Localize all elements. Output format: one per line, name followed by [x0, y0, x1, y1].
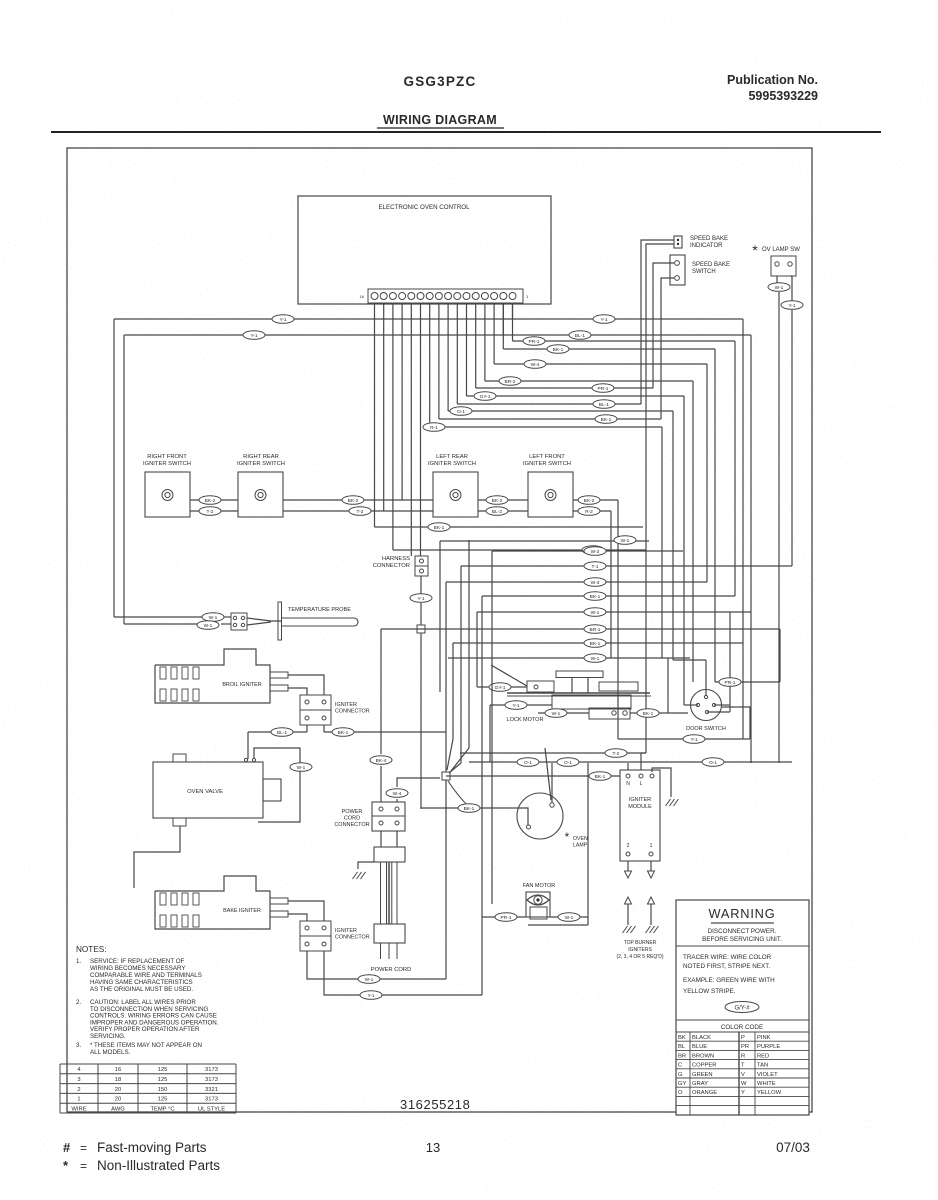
- svg-text:G/Y-#: G/Y-#: [734, 1006, 750, 1012]
- svg-text:Fast-moving Parts: Fast-moving Parts: [97, 1140, 207, 1155]
- svg-text:R: R: [741, 1053, 745, 1059]
- svg-text:BROWN: BROWN: [692, 1053, 714, 1059]
- svg-text:R-1: R-1: [430, 425, 438, 431]
- svg-text:BR-2: BR-2: [505, 379, 516, 385]
- svg-text:SERVICE: IF REPLACEMENT OF: SERVICE: IF REPLACEMENT OF: [90, 958, 185, 965]
- svg-text:GY-1: GY-1: [495, 685, 506, 691]
- svg-text:20: 20: [115, 1087, 121, 1093]
- svg-text:W-1: W-1: [209, 615, 218, 621]
- svg-text:V: V: [741, 1072, 745, 1078]
- svg-text:WIRING BECOMES NECESSARY: WIRING BECOMES NECESSARY: [90, 965, 185, 972]
- svg-text:P: P: [741, 1035, 745, 1041]
- svg-text:IGNITER SWITCH: IGNITER SWITCH: [143, 461, 191, 467]
- svg-text:W-1: W-1: [775, 285, 784, 291]
- svg-text:VIOLET: VIOLET: [757, 1072, 778, 1078]
- svg-text:Y-1: Y-1: [600, 317, 607, 323]
- svg-text:PR-1: PR-1: [529, 339, 540, 345]
- svg-text:Y-1: Y-1: [512, 703, 519, 709]
- svg-text:SPEED BAKE: SPEED BAKE: [692, 262, 730, 268]
- svg-text:CONNECTOR: CONNECTOR: [334, 822, 369, 828]
- svg-text:G: G: [678, 1072, 683, 1078]
- svg-text:ELECTRONIC OVEN CONTROL: ELECTRONIC OVEN CONTROL: [378, 204, 470, 211]
- svg-text:BK-1: BK-1: [590, 641, 601, 647]
- svg-text:PINK: PINK: [757, 1035, 771, 1041]
- svg-text:BR: BR: [678, 1053, 686, 1059]
- svg-text:Y-1: Y-1: [279, 317, 286, 323]
- svg-text:3: 3: [77, 1077, 80, 1083]
- svg-text:*: *: [565, 830, 570, 844]
- svg-text:Y-1: Y-1: [250, 333, 257, 339]
- svg-text:TOP BURNER: TOP BURNER: [624, 940, 657, 946]
- svg-text:BLUE: BLUE: [692, 1044, 707, 1050]
- svg-text:O-1: O-1: [709, 760, 717, 766]
- svg-text:3321: 3321: [205, 1087, 218, 1093]
- svg-text:T: T: [741, 1063, 745, 1069]
- svg-text:3173: 3173: [205, 1097, 218, 1103]
- svg-text:IGNITER SWITCH: IGNITER SWITCH: [523, 461, 571, 467]
- svg-text:Non-Illustrated Parts: Non-Illustrated Parts: [97, 1158, 220, 1173]
- svg-text:1.: 1.: [76, 958, 81, 965]
- svg-text:*: *: [752, 242, 758, 258]
- svg-text:W-4: W-4: [531, 362, 540, 368]
- svg-text:O-1: O-1: [524, 760, 532, 766]
- svg-text:BK-2: BK-2: [348, 498, 359, 504]
- svg-text:2: 2: [627, 843, 630, 849]
- svg-text:TAN: TAN: [757, 1063, 768, 1069]
- svg-text:316255218: 316255218: [400, 1097, 470, 1112]
- svg-text:W-2: W-2: [591, 549, 600, 555]
- svg-text:BROIL IGNITER: BROIL IGNITER: [222, 682, 261, 688]
- svg-text:FAN MOTOR: FAN MOTOR: [523, 883, 556, 889]
- svg-text:T-1: T-1: [592, 564, 599, 570]
- svg-text:PR-1: PR-1: [725, 680, 736, 686]
- svg-text:AS THE ORIGINAL MUST BE USED.: AS THE ORIGINAL MUST BE USED.: [90, 986, 193, 993]
- svg-text:YELLOW STRIPE.: YELLOW STRIPE.: [683, 988, 736, 995]
- svg-text:PR: PR: [741, 1044, 749, 1050]
- svg-text:BL-1: BL-1: [599, 402, 609, 408]
- svg-text:CONNECTOR: CONNECTOR: [335, 935, 370, 941]
- svg-text:IGNITERS: IGNITERS: [628, 947, 652, 953]
- svg-text:BK-1: BK-1: [553, 347, 564, 353]
- svg-text:16: 16: [360, 294, 365, 299]
- svg-text:3.: 3.: [76, 1042, 81, 1049]
- svg-text:TEMPERATURE PROBE: TEMPERATURE PROBE: [288, 607, 351, 613]
- svg-text:BK-2: BK-2: [584, 498, 595, 504]
- svg-text:3173: 3173: [205, 1077, 218, 1083]
- svg-text:RIGHT FRONT: RIGHT FRONT: [147, 454, 187, 460]
- svg-text:COPPER: COPPER: [692, 1063, 716, 1069]
- svg-text:W-3: W-3: [591, 580, 600, 586]
- svg-text:LEFT FRONT: LEFT FRONT: [529, 454, 565, 460]
- svg-text:BK-1: BK-1: [338, 730, 349, 736]
- svg-text:SERVICING.: SERVICING.: [90, 1033, 126, 1040]
- svg-text:BEFORE SERVICING UNIT.: BEFORE SERVICING UNIT.: [702, 936, 782, 943]
- svg-text:2.: 2.: [76, 999, 81, 1006]
- svg-text:16: 16: [115, 1067, 121, 1073]
- svg-text:SWITCH: SWITCH: [692, 269, 716, 275]
- svg-text:Y-1: Y-1: [690, 737, 697, 743]
- svg-text:GY: GY: [678, 1081, 687, 1087]
- svg-text:BAKE IGNITER: BAKE IGNITER: [223, 908, 261, 914]
- svg-text:WARNING: WARNING: [709, 906, 776, 921]
- svg-text:AWG: AWG: [111, 1106, 125, 1112]
- svg-text:W-1: W-1: [591, 656, 600, 662]
- svg-text:R-2: R-2: [585, 509, 593, 515]
- svg-text:O: O: [678, 1090, 683, 1096]
- svg-text:150: 150: [158, 1087, 168, 1093]
- svg-text:HARNESS: HARNESS: [382, 556, 410, 562]
- svg-text:ORANGE: ORANGE: [692, 1090, 717, 1096]
- svg-text:OV LAMP SW: OV LAMP SW: [762, 247, 800, 253]
- svg-text:C: C: [678, 1063, 682, 1069]
- svg-text:125: 125: [158, 1067, 168, 1073]
- svg-text:BK-1: BK-1: [434, 525, 445, 531]
- svg-text:BK-2: BK-2: [492, 498, 503, 504]
- svg-text:COMPARABLE WIRE AND TERMINALS: COMPARABLE WIRE AND TERMINALS: [90, 972, 202, 979]
- svg-text:CORD: CORD: [344, 816, 360, 822]
- svg-text:BK-1: BK-1: [601, 417, 612, 423]
- svg-text:Y-1: Y-1: [788, 303, 795, 309]
- svg-text:W-1: W-1: [365, 977, 374, 983]
- svg-text:T-2: T-2: [613, 751, 620, 757]
- svg-text:BL-2: BL-2: [492, 509, 502, 515]
- svg-text:BR-1: BR-1: [590, 627, 601, 633]
- svg-text:ALL MODELS.: ALL MODELS.: [90, 1049, 131, 1056]
- svg-text:2: 2: [77, 1087, 80, 1093]
- svg-text:BL-1: BL-1: [277, 730, 287, 736]
- svg-text:5995393229: 5995393229: [748, 89, 818, 103]
- svg-text:BK-1: BK-1: [464, 806, 475, 812]
- svg-text:PURPLE: PURPLE: [757, 1044, 780, 1050]
- svg-text:=: =: [80, 1159, 87, 1173]
- svg-text:LAMP: LAMP: [573, 843, 588, 849]
- svg-text:GRAY: GRAY: [692, 1081, 708, 1087]
- svg-text:IGNITER: IGNITER: [335, 928, 357, 934]
- svg-text:NOTED FIRST, STRIPE NEXT.: NOTED FIRST, STRIPE NEXT.: [683, 963, 770, 970]
- svg-text:MODULE: MODULE: [628, 804, 652, 810]
- svg-text:RIGHT REAR: RIGHT REAR: [243, 454, 279, 460]
- svg-text:125: 125: [158, 1077, 168, 1083]
- svg-text:POWER CORD: POWER CORD: [371, 967, 412, 973]
- svg-text:NOTES:: NOTES:: [76, 945, 106, 954]
- svg-text:BK-2: BK-2: [205, 498, 216, 504]
- svg-text:GY-1: GY-1: [480, 394, 491, 400]
- svg-text:BK-1: BK-1: [590, 594, 601, 600]
- svg-text:W-1: W-1: [591, 610, 600, 616]
- svg-text:Y-1: Y-1: [417, 596, 424, 602]
- svg-text:CONNECTOR: CONNECTOR: [335, 709, 370, 715]
- svg-text:BK-1: BK-1: [643, 711, 654, 717]
- svg-text:DOOR SWITCH: DOOR SWITCH: [686, 726, 726, 732]
- svg-text:07/03: 07/03: [776, 1140, 810, 1155]
- svg-text:Publication No.: Publication No.: [727, 73, 818, 87]
- svg-text:GSG3PZC: GSG3PZC: [404, 74, 477, 89]
- svg-text:OVEN: OVEN: [573, 836, 588, 842]
- svg-text:BLACK: BLACK: [692, 1035, 711, 1041]
- svg-text:GREEN: GREEN: [692, 1072, 713, 1078]
- svg-text:HAVING SAME CHARACTERISTICS: HAVING SAME CHARACTERISTICS: [90, 979, 193, 986]
- svg-text:1: 1: [77, 1097, 80, 1103]
- svg-text:WIRE: WIRE: [71, 1106, 86, 1112]
- svg-text:WIRING DIAGRAM: WIRING DIAGRAM: [383, 113, 497, 127]
- svg-text:IGNITER: IGNITER: [629, 797, 651, 803]
- svg-text:W-1: W-1: [297, 765, 306, 771]
- svg-text:TRACER WIRE: WIRE COLOR: TRACER WIRE: WIRE COLOR: [683, 954, 772, 961]
- svg-text:SPEED BAKE: SPEED BAKE: [690, 236, 728, 242]
- svg-text:125: 125: [158, 1097, 168, 1103]
- svg-text:EXAMPLE: GREEN WIRE WITH: EXAMPLE: GREEN WIRE WITH: [683, 977, 775, 984]
- svg-text:T-2: T-2: [207, 509, 214, 515]
- svg-text:LOCK MOTOR: LOCK MOTOR: [507, 717, 544, 723]
- svg-text:TEMP °C: TEMP °C: [150, 1106, 174, 1112]
- svg-text:BL: BL: [678, 1044, 686, 1050]
- svg-text:IGNITER SWITCH: IGNITER SWITCH: [237, 461, 285, 467]
- svg-text:#: #: [63, 1140, 71, 1155]
- svg-text:W-4: W-4: [393, 791, 402, 797]
- svg-text:PR-1: PR-1: [598, 386, 609, 392]
- svg-text:WHITE: WHITE: [757, 1081, 776, 1087]
- svg-text:O-1: O-1: [457, 409, 465, 415]
- svg-text:UL STYLE: UL STYLE: [198, 1106, 225, 1112]
- svg-text:CONNECTOR: CONNECTOR: [373, 563, 410, 569]
- svg-text:3173: 3173: [205, 1067, 218, 1073]
- svg-text:20: 20: [115, 1097, 121, 1103]
- svg-text:N: N: [626, 781, 630, 787]
- svg-text:W: W: [741, 1081, 747, 1087]
- svg-text:W-1: W-1: [204, 623, 213, 629]
- svg-text:W-1: W-1: [565, 915, 574, 921]
- svg-text:COLOR CODE: COLOR CODE: [721, 1024, 763, 1031]
- svg-text:Y: Y: [741, 1090, 745, 1096]
- svg-text:=: =: [80, 1141, 87, 1155]
- svg-text:RED: RED: [757, 1053, 769, 1059]
- svg-text:BK-1: BK-1: [595, 774, 606, 780]
- svg-text:1: 1: [650, 843, 653, 849]
- svg-text:YELLOW: YELLOW: [757, 1090, 782, 1096]
- svg-text:BK: BK: [678, 1035, 686, 1041]
- svg-text:OVEN VALVE: OVEN VALVE: [187, 789, 223, 795]
- svg-text:13: 13: [426, 1140, 440, 1155]
- svg-text:DISCONNECT POWER.: DISCONNECT POWER.: [708, 928, 777, 935]
- svg-text:LEFT REAR: LEFT REAR: [436, 454, 468, 460]
- svg-text:W-1: W-1: [552, 711, 561, 717]
- svg-text:T-2: T-2: [357, 509, 364, 515]
- svg-text:O-1: O-1: [564, 760, 572, 766]
- svg-text:INDICATOR: INDICATOR: [690, 243, 723, 249]
- svg-text:BK-4: BK-4: [376, 758, 387, 764]
- svg-text:IGNITER: IGNITER: [335, 702, 357, 708]
- svg-text:BL-1: BL-1: [575, 333, 585, 339]
- svg-text:18: 18: [115, 1077, 121, 1083]
- svg-text:PR-1: PR-1: [501, 915, 512, 921]
- svg-text:W-1: W-1: [621, 538, 630, 544]
- svg-text:(2, 3, 4 OR 5 REQ'D): (2, 3, 4 OR 5 REQ'D): [616, 954, 663, 960]
- svg-text:POWER: POWER: [342, 809, 363, 815]
- svg-text:Y-1: Y-1: [367, 993, 374, 999]
- svg-text:IGNITER SWITCH: IGNITER SWITCH: [428, 461, 476, 467]
- svg-text:L: L: [640, 781, 643, 787]
